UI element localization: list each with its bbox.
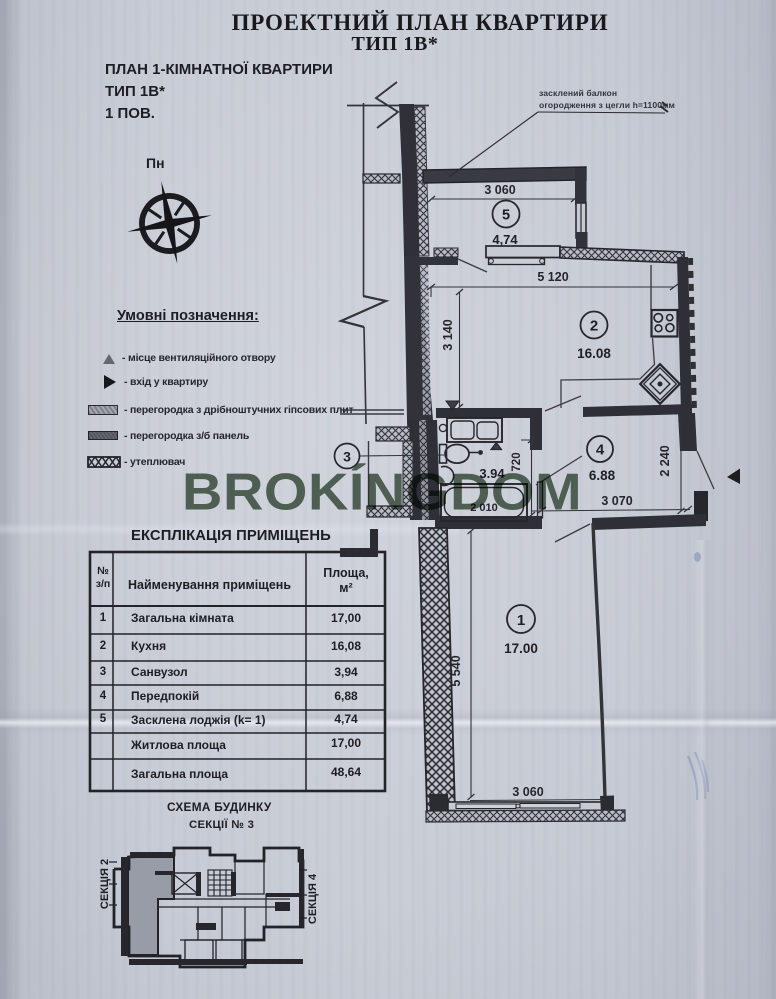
- svg-text:6.88: 6.88: [589, 468, 616, 483]
- svg-text:5: 5: [502, 208, 510, 224]
- svg-text:3 070: 3 070: [601, 494, 632, 508]
- svg-text:16.08: 16.08: [577, 346, 611, 361]
- svg-text:5 120: 5 120: [537, 270, 568, 284]
- svg-text:1: 1: [517, 612, 525, 629]
- svg-text:2 240: 2 240: [658, 445, 672, 476]
- svg-text:17.00: 17.00: [504, 641, 538, 656]
- svg-text:5 540: 5 540: [449, 655, 463, 686]
- svg-text:4,74: 4,74: [492, 232, 518, 247]
- svg-text:3 060: 3 060: [512, 785, 543, 799]
- svg-text:4: 4: [596, 442, 605, 459]
- svg-text:засклений балкон: засклений балкон: [539, 88, 617, 98]
- svg-text:3 060: 3 060: [484, 183, 515, 197]
- svg-text:огородження з цегли h=1100мм: огородження з цегли h=1100мм: [539, 100, 675, 110]
- svg-text:3 140: 3 140: [441, 319, 455, 350]
- svg-text:2: 2: [590, 318, 598, 335]
